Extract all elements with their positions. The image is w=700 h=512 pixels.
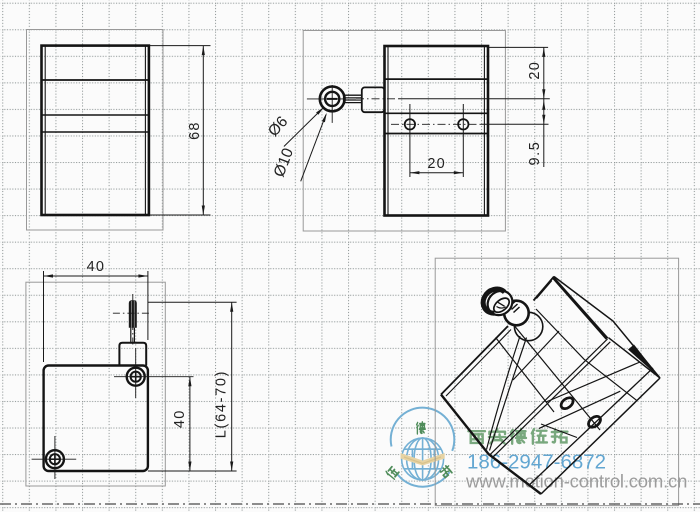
svg-text:20: 20 [427,156,446,172]
svg-text:40: 40 [172,410,188,429]
svg-text:40: 40 [87,259,106,275]
svg-text:68: 68 [187,121,203,140]
svg-text:L(64-70): L(64-70) [214,370,230,438]
svg-text:www.motion-control.com.cn: www.motion-control.com.cn [465,471,687,492]
svg-text:9.5: 9.5 [527,141,543,166]
svg-text:20: 20 [527,61,543,80]
